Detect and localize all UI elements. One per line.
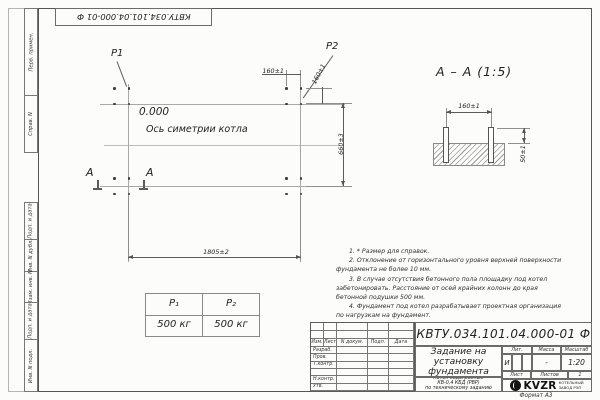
empty-cell: [368, 376, 389, 383]
empty-cell: [311, 323, 324, 331]
empty-cell: [337, 384, 368, 391]
margin-label: Инв. N подл.: [28, 348, 34, 382]
empty-cell: [337, 331, 368, 339]
col-data: Дата: [389, 339, 414, 347]
anchor-bolt-group-bottom-left: [113, 177, 130, 195]
scale-value: 1:20: [568, 358, 585, 367]
dim-660: 660±3: [337, 133, 345, 155]
margin-cell-inv-dubl: Инв. N дубл.: [24, 239, 38, 272]
top-designation-text: КВТУ.034.101.04.000-01 Ф: [77, 12, 191, 22]
extension-line: [128, 196, 129, 261]
empty-cell: [389, 323, 414, 331]
format-label: Формат А3: [480, 393, 592, 399]
note-4: 4. Фундамент под котел разрабатывает про…: [336, 302, 562, 320]
empty-cell: [389, 369, 414, 376]
section-cut-stroke: [139, 188, 148, 190]
mass-value: -: [545, 359, 548, 367]
load-table-value-p1: 500 кг: [146, 319, 202, 330]
lit-value-cell-1: И: [502, 354, 512, 371]
anchor-bolt-dot: [300, 177, 303, 180]
load-table-header-p2: Р₂: [203, 298, 259, 309]
anchor-bolt-dot: [300, 87, 303, 90]
load-table-value-p2: 500 кг: [203, 319, 259, 330]
title-block-doc-title: Задание на установку фундамента: [415, 346, 502, 377]
col-list: Лист: [324, 339, 337, 347]
designation-text: КВТУ.034.101.04.000-01 Ф: [417, 327, 591, 341]
margin-label: Подп. и дата: [28, 303, 34, 338]
anchor-bolt-group-bottom-right: [285, 177, 302, 195]
title-block-change-table: Изм. Лист N докум. Подп. Дата Разраб. Пр…: [310, 322, 415, 392]
note-3: 3. В случае отсутствия бетонного пола пл…: [336, 275, 562, 303]
margin-cell-vzam-inv: Взам. инв. N: [24, 271, 38, 303]
col-izm: Изм.: [311, 339, 324, 347]
extension-line: [306, 103, 352, 104]
extension-line: [446, 108, 447, 127]
axis-of-symmetry-label: Ось симетрии котла: [146, 124, 248, 135]
drawing-sheet: Перв. примен. Справ. N Подп. и дата Инв.…: [0, 0, 600, 400]
margin-cell-podp-data-2: Подп. и дата: [24, 302, 38, 340]
extension-line: [306, 88, 332, 89]
empty-cell: [389, 362, 414, 369]
anchor-bolt-group-top-right: [285, 87, 302, 105]
anchor-bolt-dot: [300, 193, 303, 196]
scale-value-cell: 1:20: [561, 354, 592, 371]
empty-cell: [368, 323, 389, 331]
empty-cell: [389, 376, 414, 383]
empty-cell: [389, 331, 414, 339]
extension-line: [300, 70, 301, 86]
row-prov: Пров.: [311, 354, 337, 361]
load-table-hline: [146, 315, 259, 316]
col-podp: Подп.: [368, 339, 389, 347]
note-2: 2. Отклонение от горизонтального уровня …: [336, 256, 562, 274]
doc-title-line: Задание на: [431, 347, 487, 357]
dimension-line: [446, 112, 492, 113]
empty-cell: [337, 347, 368, 354]
sheet-cell: Лист: [502, 371, 531, 379]
anchor-bolt-dot: [128, 103, 131, 106]
empty-cell: [324, 331, 337, 339]
extension-line: [300, 196, 301, 261]
anchor-bolt-dot: [113, 87, 116, 90]
extension-line: [491, 108, 492, 127]
mass-value-cell: -: [532, 354, 561, 371]
doc-title-line: фундамента: [428, 367, 489, 377]
scale-header: Масштаб: [561, 346, 592, 354]
lit-value: И: [504, 359, 509, 367]
empty-cell: [368, 347, 389, 354]
margin-label: Перв. примен.: [28, 33, 34, 72]
empty-cell: [389, 384, 414, 391]
section-view-title: А – А (1:5): [436, 64, 512, 79]
anchor-bolt-dot: [128, 193, 131, 196]
anchor-bolt-dot: [285, 87, 288, 90]
plan-centerline-axis: [104, 145, 340, 146]
note-1: 1. * Размер для справок.: [336, 247, 562, 256]
anchor-bolt-group-top-left: [113, 87, 130, 105]
empty-cell: [368, 331, 389, 339]
dim-1805: 1805±2: [196, 248, 236, 256]
kvzr-logo-text: KVZR: [523, 380, 556, 392]
empty-cell: [368, 354, 389, 361]
empty-cell: [337, 362, 368, 369]
margin-label: Взам. инв. N: [28, 270, 34, 304]
anchor-bolt-dot: [113, 193, 116, 196]
section-dim-160: 160±1: [446, 102, 492, 110]
extension-line: [508, 143, 530, 144]
empty-cell: [337, 323, 368, 331]
margin-cell-podp-data-1: Подп. и дата: [24, 202, 38, 240]
anchor-bolt-dot: [128, 87, 131, 90]
empty-cell: [389, 347, 414, 354]
row-nkontr: Н.контр.: [311, 376, 337, 383]
kvzr-logo-icon: [510, 380, 521, 391]
section-mark-a-left: А: [86, 166, 94, 179]
empty-cell: [311, 331, 324, 339]
title-block-product-name: Котел водогрейный КВ-0,4 КБД (РВР) по те…: [415, 377, 502, 392]
logo-sub-line: ЗАВОД РЭП: [559, 386, 584, 390]
anchor-bolt-dot: [285, 103, 288, 106]
anchor-bolt-dot: [285, 193, 288, 196]
row-razrab: Разраб.: [311, 347, 337, 354]
empty-cell: [389, 354, 414, 361]
section-mark-a-right: А: [146, 166, 154, 179]
anchor-bolt-section-left: [443, 127, 449, 163]
margin-label: Справ. N: [28, 112, 34, 136]
anchor-bolt-dot: [128, 177, 131, 180]
title-block-designation: КВТУ.034.101.04.000-01 Ф: [415, 322, 592, 346]
top-designation-stamp: КВТУ.034.101.04.000-01 Ф: [55, 8, 212, 26]
extension-line: [497, 128, 530, 129]
extension-line: [286, 70, 287, 86]
sheets-count-cell: 1: [568, 371, 592, 379]
company-logo-cell: KVZR КОТЕЛЬНЫЙ ЗАВОД РЭП: [502, 379, 592, 392]
empty-cell: [337, 354, 368, 361]
empty-cell: [337, 369, 368, 376]
empty-cell: [368, 369, 389, 376]
empty-cell: [324, 323, 337, 331]
doc-title-line: установку: [434, 357, 484, 367]
technical-notes: 1. * Размер для справок. 2. Отклонение о…: [336, 247, 562, 321]
elevation-mark: 0.000: [139, 106, 169, 118]
margin-cell-inv-podl: Инв. N подл.: [24, 339, 38, 392]
load-table-header-p1: Р₁: [146, 298, 202, 309]
anchor-bolt-dot: [285, 177, 288, 180]
empty-cell: [337, 376, 368, 383]
margin-label: Подп. и дата: [28, 203, 34, 238]
lit-header: Лит.: [502, 346, 532, 354]
empty-cell: [368, 362, 389, 369]
row-blank: [311, 369, 337, 376]
margin-cell-perv-primen: Перв. примен.: [24, 8, 38, 96]
load-table: Р₁ Р₂ 500 кг 500 кг: [145, 293, 260, 337]
lit-value-cell-2: [512, 354, 522, 371]
mass-header: Масса: [532, 346, 561, 354]
anchor-bolt-section-right: [488, 127, 494, 163]
sheets-cell: Листов: [531, 371, 568, 379]
margin-cell-sprav-n: Справ. N: [24, 95, 38, 153]
row-utv: Утв.: [311, 384, 337, 391]
anchor-bolt-dot: [300, 103, 303, 106]
load-point-p1-label: Р1: [111, 48, 123, 59]
margin-label: Инв. N дубл.: [28, 239, 34, 273]
dimension-line: [128, 257, 301, 258]
section-cut-stroke: [93, 188, 102, 190]
kvzr-logo-subtitle: КОТЕЛЬНЫЙ ЗАВОД РЭП: [559, 381, 584, 389]
dim-160-horizontal: 160±1: [252, 67, 284, 75]
anchor-bolt-dot: [113, 177, 116, 180]
plan-outline-top: [100, 104, 345, 105]
row-tkontr: Т.контр.: [311, 362, 337, 369]
dimension-line: [322, 87, 323, 104]
col-ndokum: N докум.: [337, 339, 368, 347]
anchor-bolt-dot: [113, 103, 116, 106]
product-line: по техническому заданию: [425, 387, 492, 392]
extension-line: [306, 186, 352, 187]
load-point-p2-label: Р2: [326, 41, 338, 52]
empty-cell: [368, 384, 389, 391]
section-dim-50: 50±1: [519, 145, 527, 163]
lit-value-cell-3: [522, 354, 532, 371]
